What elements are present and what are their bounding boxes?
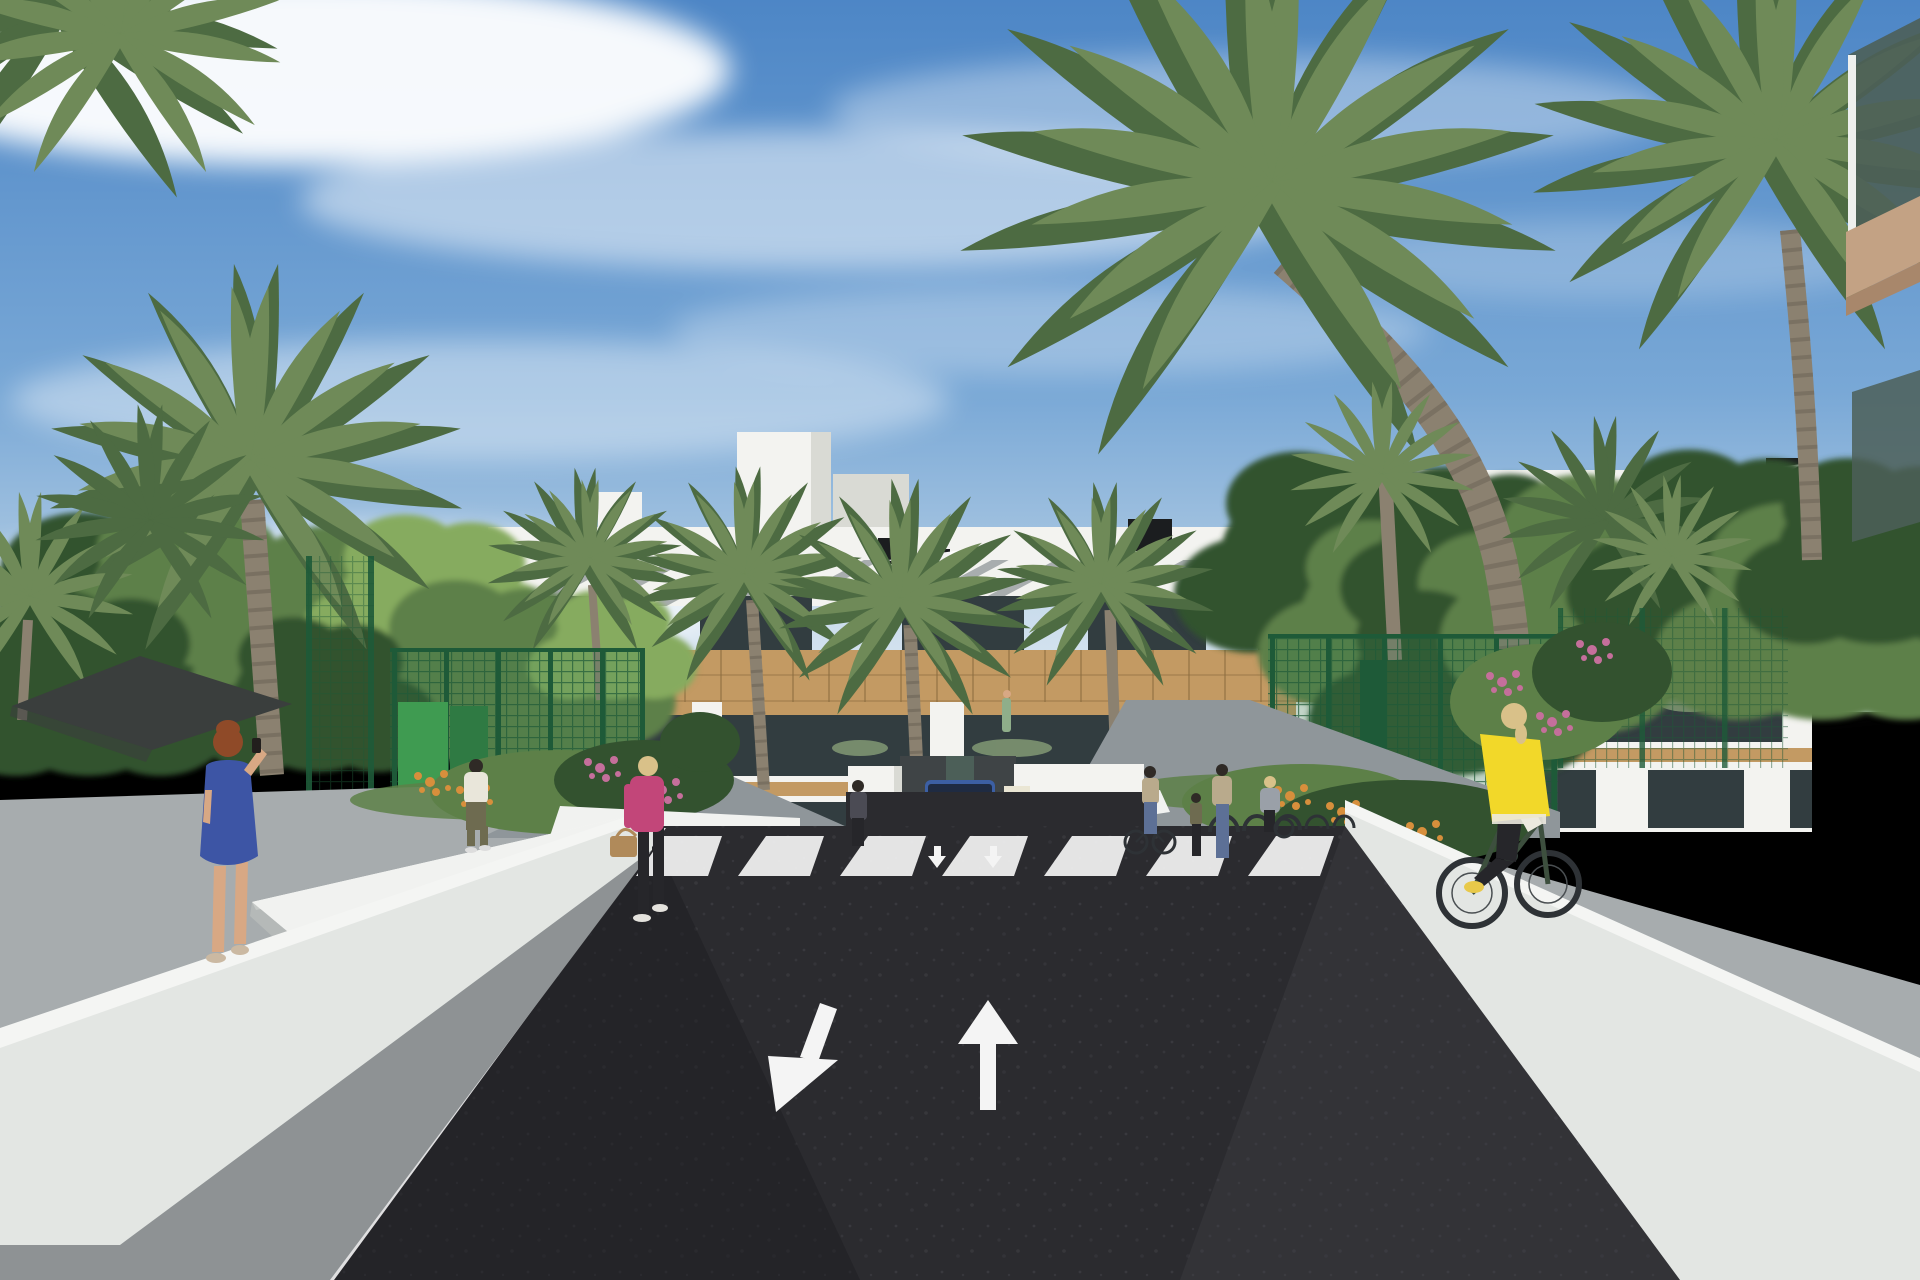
glass-balustrade-lower (1852, 370, 1920, 542)
foreground-balcony-corner (1846, 18, 1920, 542)
phone (252, 738, 261, 753)
handbag (610, 836, 637, 857)
render-scene: Sunny 3D rendering of a modern white thr… (0, 0, 1920, 1280)
scene-canvas: Sunny 3D rendering of a modern white thr… (0, 0, 1920, 1280)
